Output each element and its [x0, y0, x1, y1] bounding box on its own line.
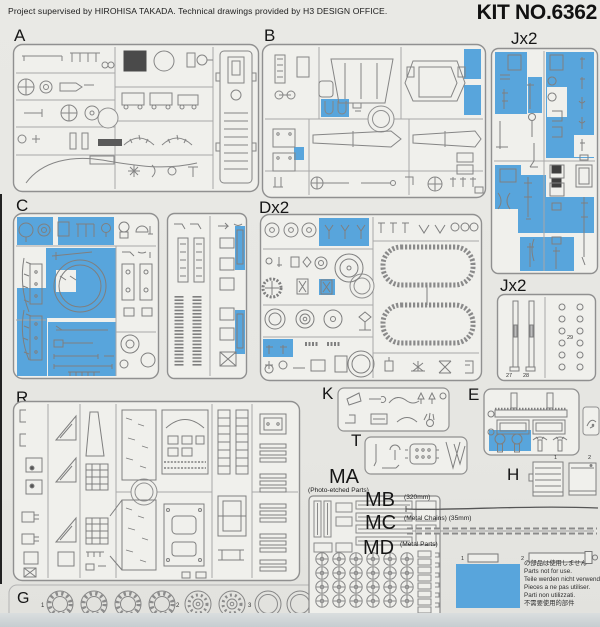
panel-d-sprue	[259, 213, 483, 382]
not-for-use-swatch	[456, 564, 520, 608]
scan-edge-line	[0, 194, 2, 584]
panel-r-sprue	[12, 400, 301, 582]
panel-k-label: K	[322, 384, 333, 404]
mc-label: MC	[365, 512, 396, 535]
not-for-use-legend: の部品は使用しません Parts not for use. Teile werd…	[524, 560, 600, 608]
panel-c2-sprue	[166, 212, 248, 380]
legend-line-en: Parts not for use.	[524, 568, 600, 576]
panel-a-sprue	[12, 43, 260, 193]
mb-sublabel: (320mm)	[404, 494, 430, 501]
credit-text: Project supervised by HIROHISA TAKADA. T…	[8, 6, 387, 16]
ma-sublabel: (Photo-etched Parts)	[308, 487, 369, 494]
scan-bottom-edge	[0, 613, 600, 627]
md-sublabel: (Metal Parts)	[400, 541, 438, 548]
g-group-3: 3	[248, 603, 252, 609]
mc-sublabel: (Metal Chains) (35mm)	[404, 515, 471, 522]
h-item-2: 2	[588, 455, 591, 461]
jbottom-part-27: 27	[506, 373, 512, 379]
md-item-1: 1	[461, 556, 464, 562]
legend-line-fr: Pieces a ne pas utiliser.	[524, 584, 600, 592]
legend-line-ja: の部品は使用しません	[524, 560, 600, 568]
jbottom-part-28: 28	[523, 373, 529, 379]
legend-line-de: Teile werden nicht verwendet.	[524, 576, 600, 584]
panel-jtop-label: Jx2	[511, 29, 537, 49]
panel-t-sprue	[364, 436, 468, 475]
legend-line-zh: 不需要使用的部件	[524, 600, 600, 608]
panel-h-label: H	[507, 465, 519, 485]
panel-h-parts: 1 2	[525, 452, 597, 499]
md-label: MD	[363, 537, 394, 560]
ma-label: MA	[329, 466, 359, 489]
h-item-1: 1	[554, 455, 557, 461]
panel-e-sprue	[483, 388, 580, 456]
panel-k-sprue	[337, 387, 450, 432]
jbottom-part-29: 29	[567, 335, 573, 341]
legend-line-it: Parti non utilizzati.	[524, 592, 600, 600]
mb-wire	[404, 502, 600, 514]
g-group-2: 2	[176, 603, 180, 609]
panel-jtop-sprue	[490, 47, 599, 275]
panel-b-sprue	[261, 43, 487, 199]
mb-label: MB	[365, 489, 395, 512]
panel-jbottom-sprue: 27 28 29	[496, 293, 597, 382]
panel-c-sprue	[12, 212, 160, 380]
kit-number: KIT NO.6362	[477, 1, 597, 25]
instruction-sheet: Project supervised by HIROHISA TAKADA. T…	[0, 0, 600, 627]
g-group-1: 1	[41, 603, 45, 609]
panel-e-label: E	[468, 385, 479, 405]
panel-t-label: T	[351, 431, 361, 451]
panel-e-side-part	[582, 406, 600, 436]
mc-chain	[404, 523, 600, 539]
